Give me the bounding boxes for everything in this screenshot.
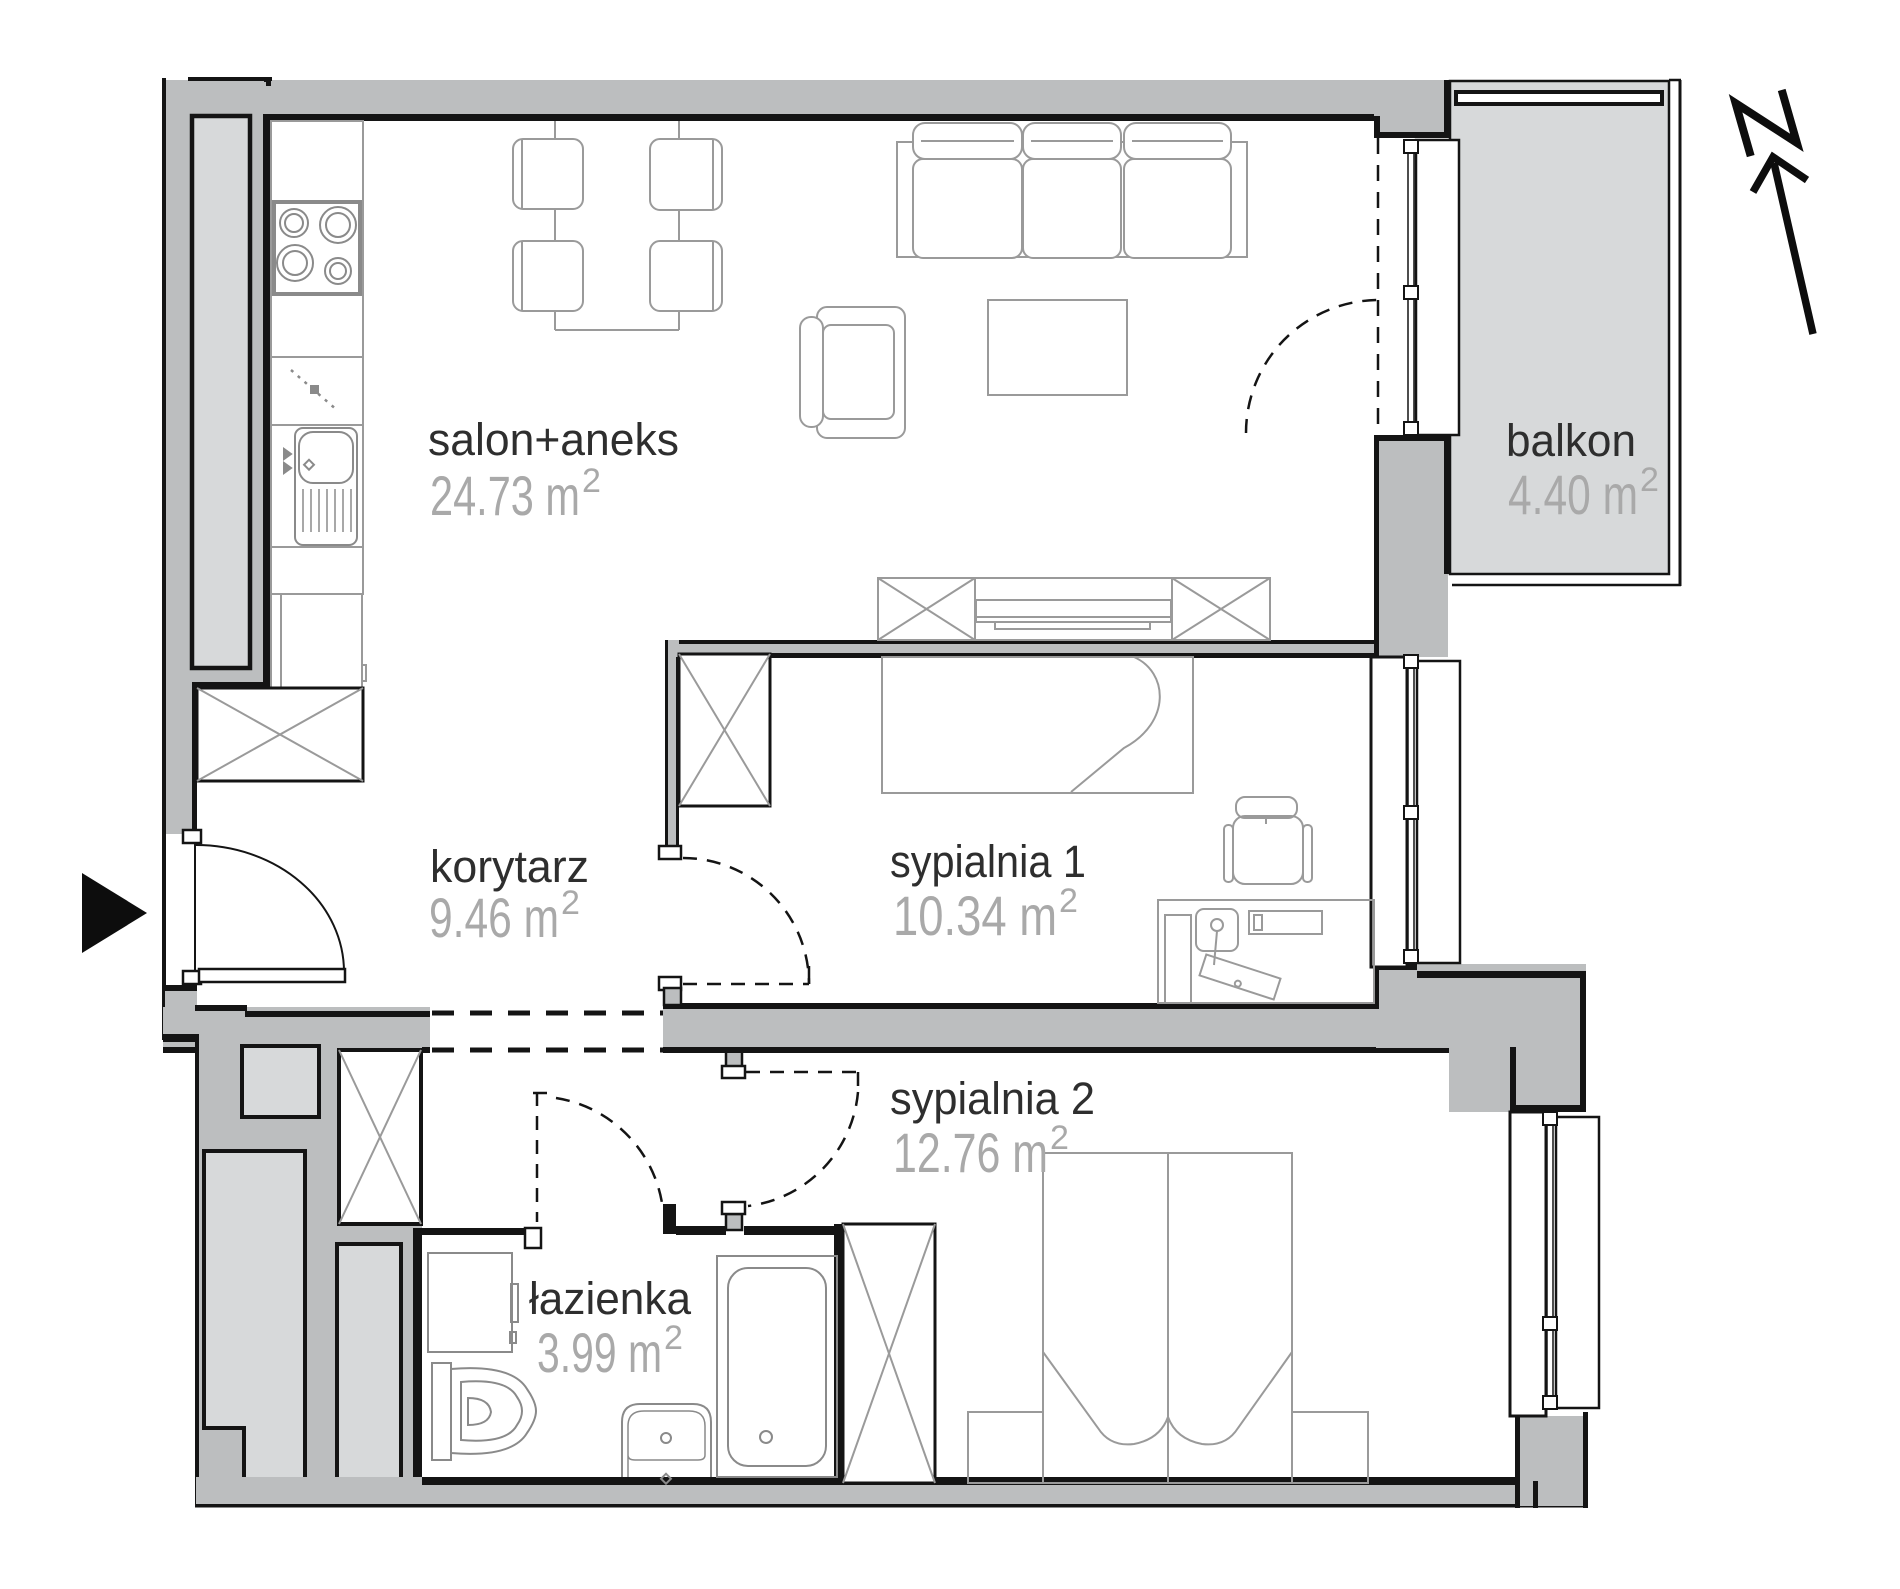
svg-text:2: 2 [1640, 461, 1659, 499]
svg-text:2: 2 [1050, 1119, 1069, 1157]
svg-text:balkon: balkon [1506, 415, 1636, 466]
svg-text:2: 2 [664, 1319, 683, 1357]
svg-text:2: 2 [1059, 882, 1078, 920]
svg-text:sypialnia 1: sypialnia 1 [890, 836, 1086, 887]
svg-text:2: 2 [582, 462, 601, 500]
svg-text:4.40 m: 4.40 m [1508, 463, 1638, 526]
svg-text:2: 2 [561, 884, 580, 922]
svg-text:salon+aneks: salon+aneks [428, 414, 679, 465]
svg-text:12.76 m: 12.76 m [893, 1121, 1048, 1184]
svg-text:łazienka: łazienka [529, 1273, 692, 1324]
svg-text:sypialnia 2: sypialnia 2 [890, 1073, 1095, 1124]
svg-text:3.99 m: 3.99 m [537, 1321, 662, 1384]
svg-text:24.73 m: 24.73 m [430, 464, 580, 527]
svg-text:10.34 m: 10.34 m [893, 884, 1057, 947]
svg-text:9.46 m: 9.46 m [429, 886, 559, 949]
